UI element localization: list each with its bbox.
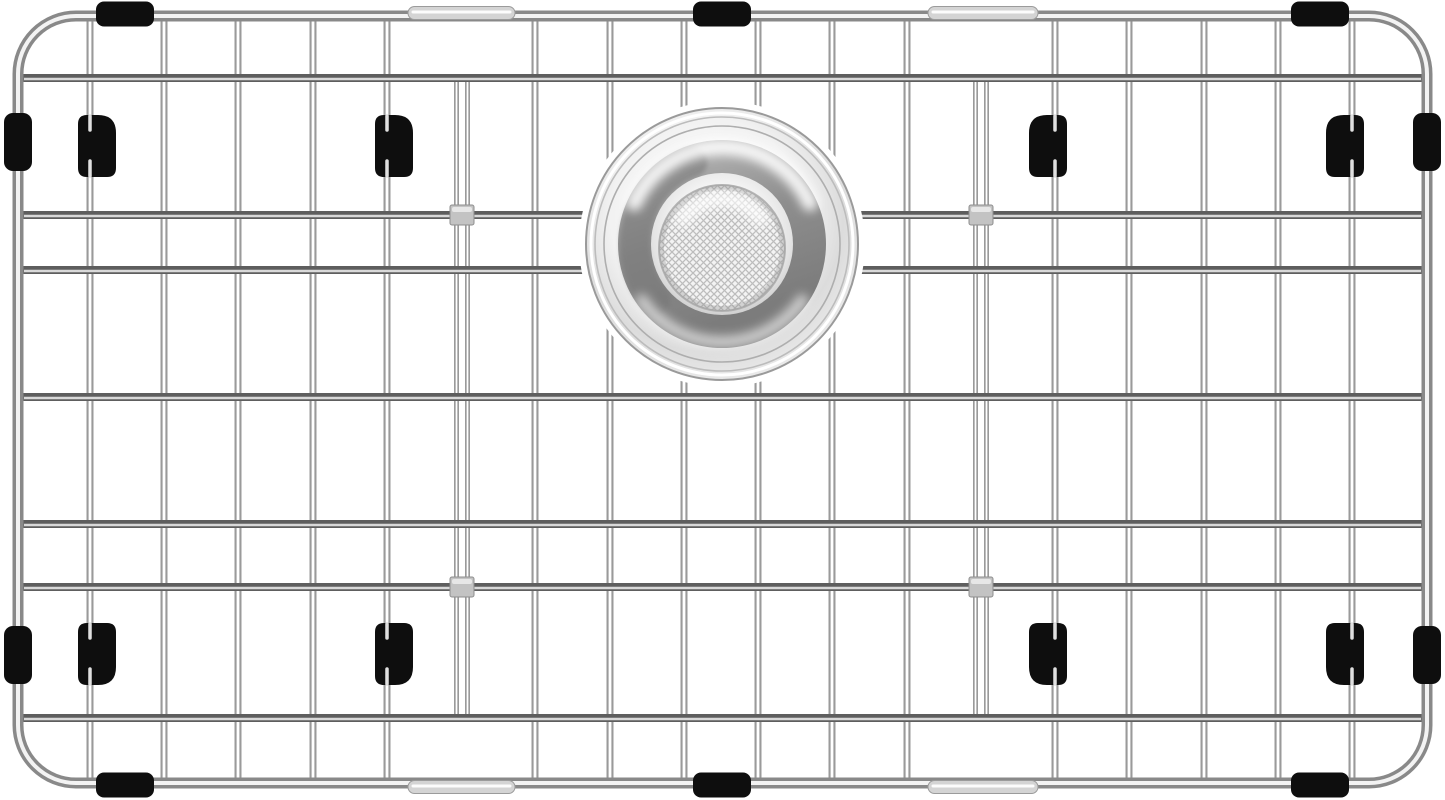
horizontal-wire [22,397,1423,398]
frame-sleeve [928,7,1038,20]
rubber-foot [1326,115,1364,177]
rubber-foot [78,623,116,685]
side-bumper [1413,626,1441,684]
cap-bumper [693,2,751,27]
cap-bumper [96,2,154,27]
side-bumper [4,626,32,684]
cap-bumper [96,773,154,798]
product-photo [0,0,1445,800]
drain-strainer [579,101,865,387]
rubber-foot [1326,623,1364,685]
sink-grid-illustration [0,0,1445,800]
horizontal-wire [22,78,1423,79]
rubber-foot [375,623,413,685]
cap-bumper [693,773,751,798]
connector-block [450,205,474,225]
frame-sleeve [408,7,515,20]
cap-bumper [1291,773,1349,798]
horizontal-wire [22,718,1423,719]
side-bumper [4,113,32,171]
frame-sleeve [928,781,1038,794]
cap-bumper [1291,2,1349,27]
rubber-foot [1029,623,1067,685]
rubber-foot [1029,115,1067,177]
rubber-foot [78,115,116,177]
frame-sleeve [408,781,515,794]
connector-block [969,205,993,225]
connector-block [969,577,993,597]
horizontal-wire [22,587,1423,588]
side-bumper [1413,113,1441,171]
rubber-foot [375,115,413,177]
connector-block [450,577,474,597]
horizontal-wire [22,524,1423,525]
